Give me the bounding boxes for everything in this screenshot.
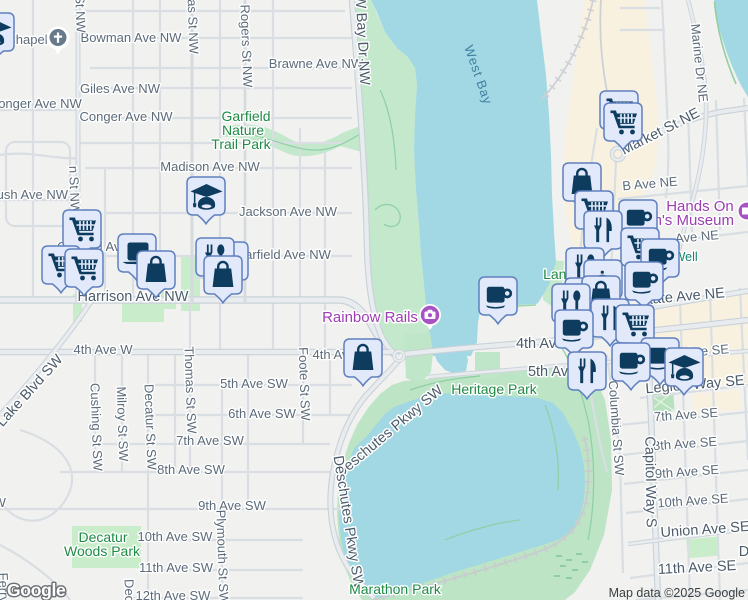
svg-text:7th Ave SW: 7th Ave SW: [176, 433, 244, 448]
svg-text:Thomas St SW: Thomas St SW: [181, 346, 199, 435]
svg-text:Rogers St NW: Rogers St NW: [238, 4, 256, 88]
svg-text:11th Ave SW: 11th Ave SW: [139, 560, 214, 575]
svg-text:Milroy St SW: Milroy St SW: [114, 386, 132, 462]
svg-text:Giles Ave NW: Giles Ave NW: [80, 81, 161, 96]
svg-text:10th Ave SW: 10th Ave SW: [138, 529, 214, 544]
svg-text:n St NW: n St NW: [66, 166, 83, 216]
svg-text:onger Ave NW: onger Ave NW: [0, 96, 83, 111]
svg-text:9th Ave SW: 9th Ave SW: [198, 498, 266, 513]
svg-text:Trail Park: Trail Park: [211, 136, 271, 152]
svg-text:5th Ave SW: 5th Ave SW: [220, 376, 288, 391]
svg-text:Foote St SW: Foote St SW: [296, 347, 314, 422]
svg-text:8th Ave SW: 8th Ave SW: [157, 462, 225, 477]
svg-text:Brawne Ave NW: Brawne Ave NW: [269, 56, 364, 71]
svg-text:Google: Google: [7, 580, 66, 600]
svg-text:Garfield Ave NW: Garfield Ave NW: [235, 247, 332, 262]
svg-text:Madison Ave NW: Madison Ave NW: [160, 159, 260, 174]
svg-text:Plymouth St SW: Plymouth St SW: [213, 509, 231, 600]
svg-text:Bowman Ave NW: Bowman Ave NW: [81, 30, 183, 45]
svg-text:Rainbow Rails: Rainbow Rails: [322, 309, 418, 326]
svg-text:4th Ave W: 4th Ave W: [73, 342, 133, 357]
svg-text:Map data ©2025 Google: Map data ©2025 Google: [609, 586, 745, 600]
svg-text:Marathon Park: Marathon Park: [349, 581, 442, 597]
svg-text:D: D: [739, 544, 748, 560]
svg-text:9th Ave SW: 9th Ave SW: [0, 495, 7, 510]
svg-text:6th Ave SW: 6th Ave SW: [228, 406, 296, 421]
svg-text:12th Ave SW: 12th Ave SW: [136, 588, 212, 600]
svg-text:Woods Park: Woods Park: [64, 543, 141, 559]
svg-text:Bush Ave NW: Bush Ave NW: [0, 187, 69, 202]
svg-text:Harrison Ave NW: Harrison Ave NW: [78, 289, 189, 305]
svg-text:Jackson Ave NW: Jackson Ave NW: [239, 204, 338, 219]
svg-text:Cushing St SW: Cushing St SW: [87, 383, 105, 472]
svg-text:Decatur St SW: Decatur St SW: [142, 384, 160, 471]
svg-text:St NW: St NW: [72, 0, 88, 34]
svg-text:Capitol Way S: Capitol Way S: [641, 436, 659, 528]
svg-text:Heritage Park: Heritage Park: [451, 381, 538, 397]
svg-text:Decatur St SW: Decatur St SW: [122, 579, 140, 600]
svg-text:Conger Ave NW: Conger Ave NW: [80, 109, 174, 124]
